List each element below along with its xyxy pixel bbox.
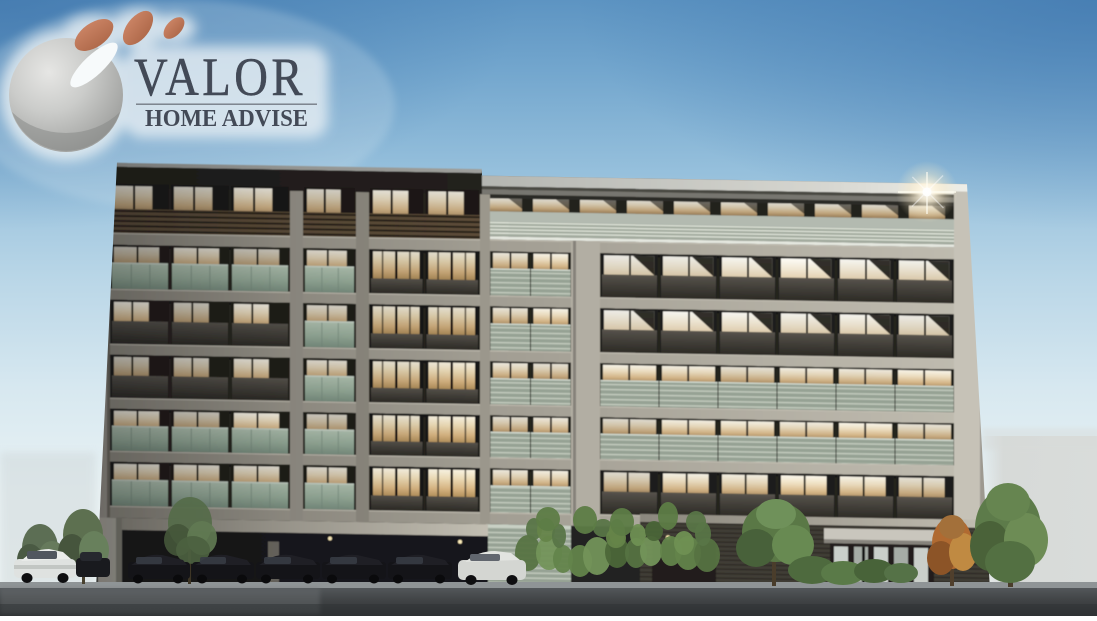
svg-text:HOME ADVISE: HOME ADVISE <box>145 105 308 132</box>
svg-text:VALOR: VALOR <box>134 47 306 107</box>
